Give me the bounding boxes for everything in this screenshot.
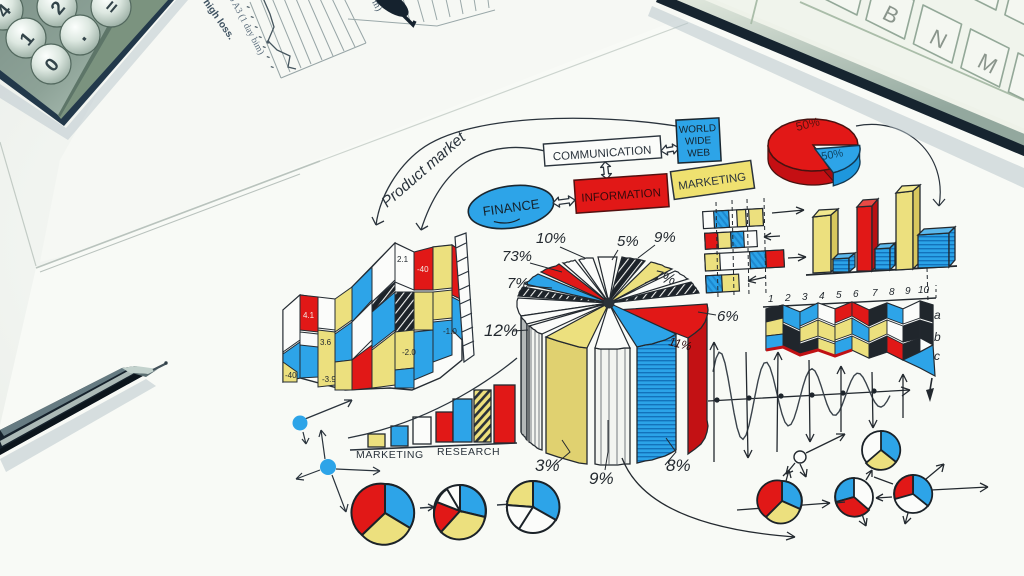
svg-text:5%: 5% <box>617 233 639 250</box>
svg-text:4.1: 4.1 <box>303 311 315 320</box>
svg-text:3%: 3% <box>535 456 560 475</box>
svg-text:c: c <box>934 349 940 363</box>
svg-text:RESEARCH: RESEARCH <box>437 446 500 458</box>
svg-text:73%: 73% <box>502 248 532 265</box>
svg-text:WEB: WEB <box>687 147 711 159</box>
svg-text:b: b <box>934 330 941 344</box>
svg-text:9%: 9% <box>589 469 614 488</box>
svg-text:6: 6 <box>853 289 859 300</box>
svg-text:10: 10 <box>918 285 930 296</box>
svg-text:-40: -40 <box>285 371 297 380</box>
svg-text:7%: 7% <box>507 275 529 292</box>
svg-text:-1.0: -1.0 <box>443 327 457 336</box>
svg-text:7: 7 <box>872 288 878 299</box>
svg-text:4: 4 <box>819 291 825 302</box>
svg-text:10%: 10% <box>536 230 566 247</box>
svg-text:12%: 12% <box>484 321 518 340</box>
svg-text:WORLD: WORLD <box>679 123 717 136</box>
svg-text:-40: -40 <box>417 265 429 274</box>
svg-text:-3.9: -3.9 <box>322 375 336 384</box>
svg-text:8: 8 <box>889 287 895 298</box>
svg-text:5: 5 <box>836 290 842 301</box>
svg-text:-2.0: -2.0 <box>402 348 416 357</box>
svg-text:a: a <box>934 308 941 322</box>
svg-text:MARKETING: MARKETING <box>356 449 424 461</box>
svg-text:3: 3 <box>802 292 808 303</box>
svg-text:1: 1 <box>768 294 774 305</box>
svg-text:2.1: 2.1 <box>397 255 409 264</box>
svg-text:9: 9 <box>905 286 911 297</box>
svg-text:6%: 6% <box>717 308 739 325</box>
svg-text:WIDE: WIDE <box>685 135 712 147</box>
svg-text:9%: 9% <box>654 229 676 246</box>
svg-text:2: 2 <box>784 293 791 304</box>
svg-text:3.6: 3.6 <box>320 338 332 347</box>
